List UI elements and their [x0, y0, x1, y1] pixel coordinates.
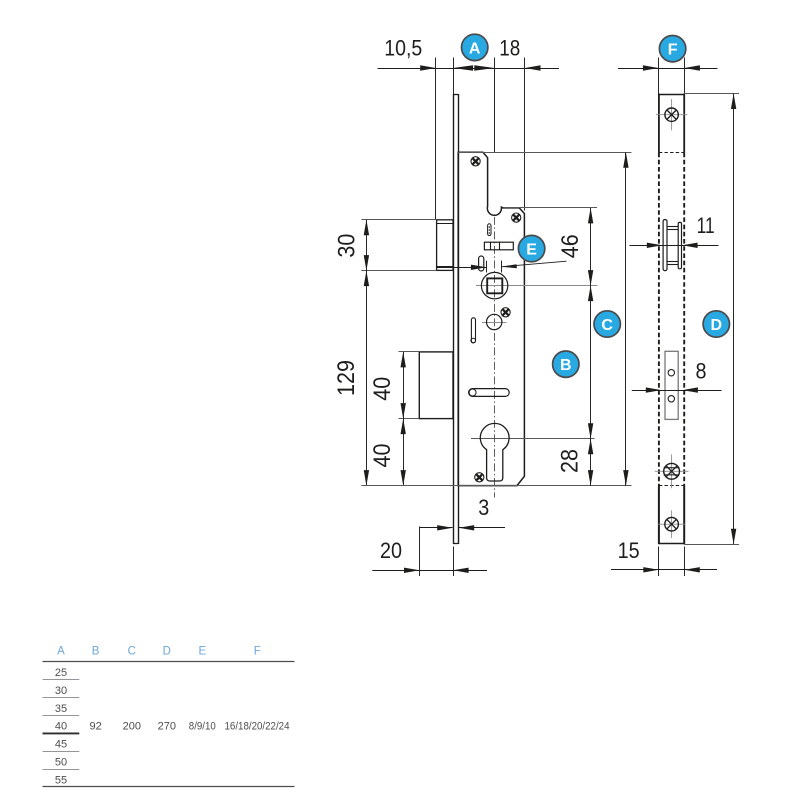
svg-text:E: E — [198, 645, 206, 657]
svg-text:20: 20 — [380, 538, 402, 563]
svg-text:11: 11 — [697, 213, 715, 238]
svg-text:28: 28 — [557, 449, 584, 473]
svg-text:40: 40 — [369, 444, 396, 468]
svg-text:A: A — [57, 645, 65, 657]
svg-text:129: 129 — [333, 360, 360, 396]
svg-text:16/18/20/22/24: 16/18/20/22/24 — [225, 721, 290, 733]
svg-text:30: 30 — [333, 234, 360, 258]
svg-text:B: B — [560, 357, 572, 374]
svg-text:C: C — [128, 645, 136, 657]
svg-text:8: 8 — [696, 358, 707, 383]
svg-text:30: 30 — [55, 685, 67, 697]
svg-text:C: C — [601, 317, 613, 334]
svg-text:A: A — [469, 40, 481, 57]
svg-text:25: 25 — [55, 667, 67, 679]
svg-text:D: D — [711, 317, 723, 334]
svg-text:45: 45 — [55, 739, 67, 751]
svg-text:18: 18 — [499, 36, 520, 61]
svg-text:15: 15 — [618, 538, 640, 563]
svg-text:35: 35 — [55, 703, 67, 715]
svg-text:40: 40 — [369, 377, 396, 401]
svg-text:F: F — [668, 42, 678, 59]
svg-text:E: E — [526, 242, 537, 259]
svg-text:F: F — [254, 645, 261, 657]
svg-text:46: 46 — [557, 234, 584, 258]
svg-text:40: 40 — [55, 721, 67, 733]
svg-text:55: 55 — [55, 774, 67, 786]
svg-text:B: B — [92, 645, 100, 657]
svg-text:8/9/10: 8/9/10 — [189, 721, 216, 733]
svg-text:3: 3 — [478, 495, 489, 520]
svg-text:270: 270 — [158, 721, 176, 733]
svg-text:10,5: 10,5 — [384, 35, 422, 60]
svg-text:200: 200 — [123, 721, 141, 733]
svg-text:D: D — [163, 645, 171, 657]
svg-text:50: 50 — [55, 757, 67, 769]
svg-text:92: 92 — [89, 721, 101, 733]
